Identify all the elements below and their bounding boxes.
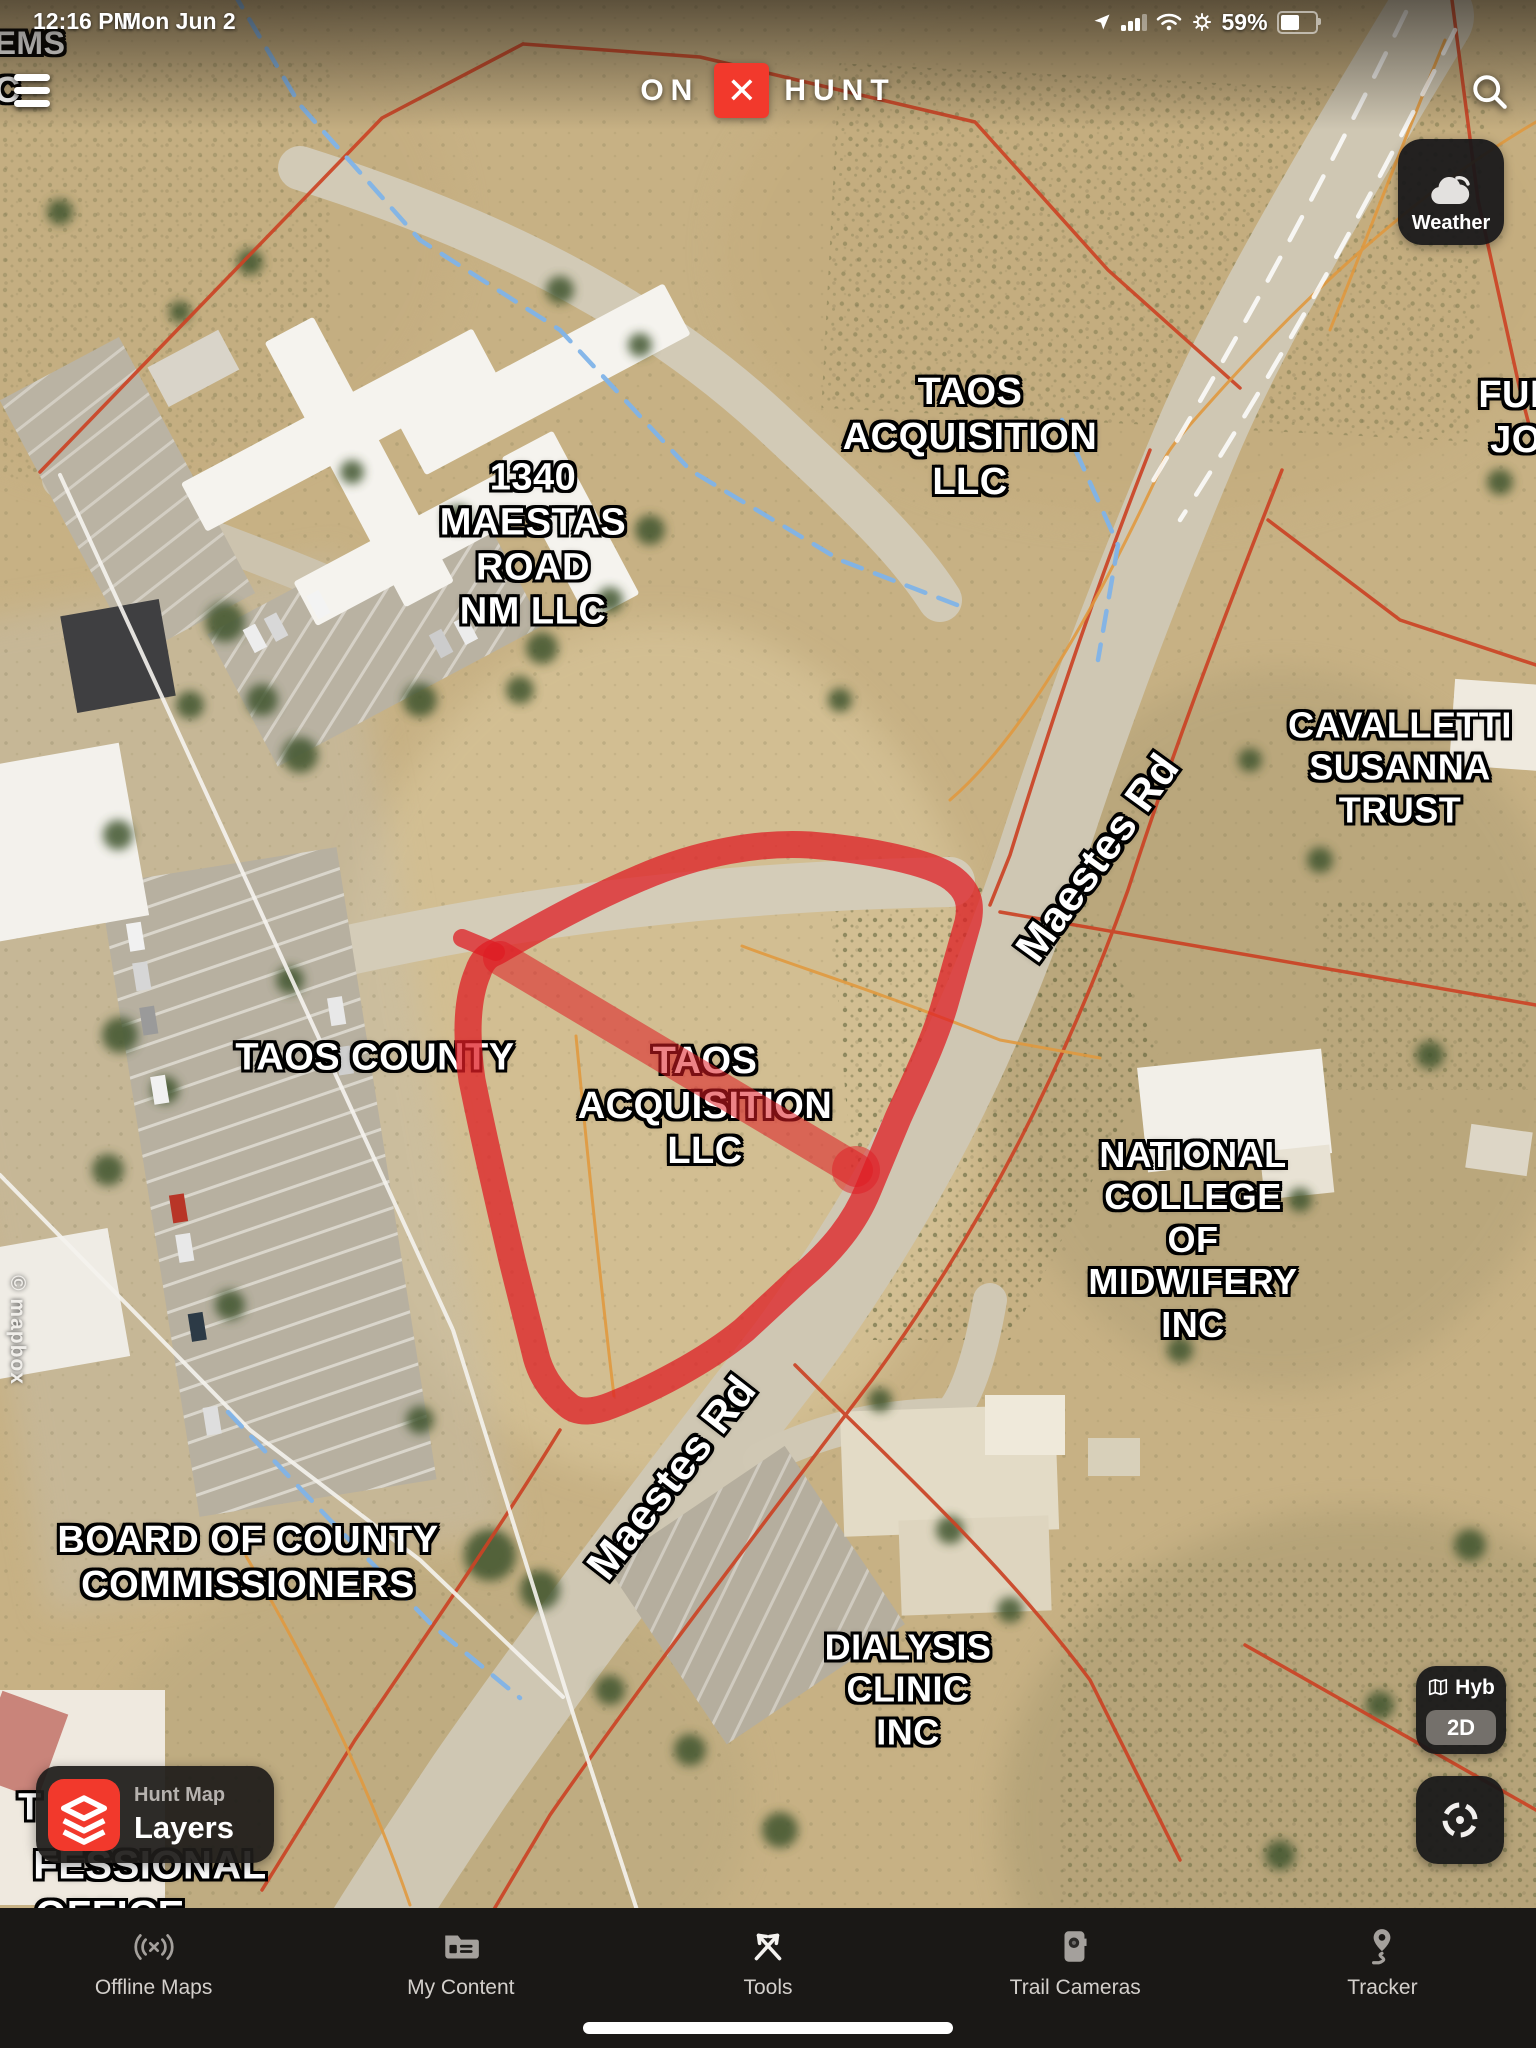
map-label-taos-county: TAOS COUNTY: [235, 1036, 514, 1081]
menu-button[interactable]: [14, 74, 52, 110]
home-indicator[interactable]: [583, 2022, 953, 2034]
tools-icon: [747, 1926, 789, 1968]
wifi-icon: [1156, 12, 1182, 32]
offline-maps-icon: [133, 1926, 175, 1968]
map-labels-layer: EMSICTAOS ACQUISITION LLCFUL JO1340 MAES…: [0, 0, 1536, 2048]
map-label-ful: FUL JO: [1478, 373, 1536, 463]
my-content-icon: [440, 1926, 482, 1968]
tab-label: My Content: [407, 1976, 514, 2000]
basemap-label: Hyb: [1455, 1676, 1495, 1700]
tab-my-content[interactable]: My Content: [307, 1908, 614, 2048]
gear-icon: [1191, 11, 1213, 33]
map-layers-button[interactable]: Hunt Map Layers: [36, 1766, 274, 1863]
tab-label: Tracker: [1347, 1976, 1417, 2000]
clock: 12:16 PM: [33, 8, 133, 35]
tab-offline-maps[interactable]: Offline Maps: [0, 1908, 307, 2048]
locate-button[interactable]: [1416, 1776, 1504, 1864]
location-arrow-icon: [1092, 12, 1112, 32]
map-label-maestes-rd-2: Maestes Rd: [577, 1366, 767, 1589]
map-label-dialysis: DIALYSIS CLINIC INC: [825, 1626, 992, 1753]
map-label-taos-acq-north: TAOS ACQUISITION LLC: [843, 370, 1098, 504]
tab-label: Offline Maps: [95, 1976, 213, 2000]
mapbox-attribution: © mapbox: [5, 1275, 29, 1385]
weather-button[interactable]: Weather: [1398, 139, 1504, 245]
basemap-toggle[interactable]: Hyb 2D: [1416, 1666, 1506, 1754]
tab-label: Trail Cameras: [1010, 1976, 1141, 2000]
tab-trail-cameras[interactable]: Trail Cameras: [922, 1908, 1229, 2048]
cloud-sun-icon: [1423, 166, 1479, 210]
layers-button-label: Layers: [134, 1810, 234, 1846]
dimension-toggle-button[interactable]: 2D: [1426, 1710, 1496, 1745]
layers-button-title: Hunt Map: [134, 1784, 234, 1807]
battery-icon: [1277, 11, 1318, 34]
search-button[interactable]: [1466, 68, 1514, 116]
crosshair-icon: [1436, 1796, 1484, 1844]
map-label-taos-acq-parcel: TAOS ACQUISITION LLC: [578, 1039, 833, 1173]
battery-percent: 59%: [1222, 9, 1268, 36]
onx-hunt-app: EMSICTAOS ACQUISITION LLCFUL JO1340 MAES…: [0, 0, 1536, 2048]
map-label-cavalletti: CAVALLETTI SUSANNA TRUST: [1288, 704, 1512, 831]
weather-label: Weather: [1412, 212, 1491, 235]
cellular-signal-icon: [1121, 14, 1147, 31]
date: Mon Jun 2: [122, 8, 236, 35]
map-label-maestes-rd-1: Maestes Rd: [1006, 744, 1190, 971]
tracker-icon: [1361, 1926, 1403, 1968]
trail-cameras-icon: [1054, 1926, 1096, 1968]
map-icon: [1427, 1677, 1449, 1699]
map-label-maestas-1340: 1340 MAESTAS ROAD NM LLC: [440, 455, 626, 634]
layers-icon: [48, 1779, 120, 1851]
map-label-natl-college: NATIONAL COLLEGE OF MIDWIFERY INC: [1088, 1134, 1297, 1346]
status-bar: 12:16 PM Mon Jun 2 59%: [0, 8, 1536, 38]
map-label-board-county: BOARD OF COUNTY COMMISSIONERS: [57, 1518, 438, 1608]
tab-tracker[interactable]: Tracker: [1229, 1908, 1536, 2048]
tab-label: Tools: [743, 1976, 792, 2000]
